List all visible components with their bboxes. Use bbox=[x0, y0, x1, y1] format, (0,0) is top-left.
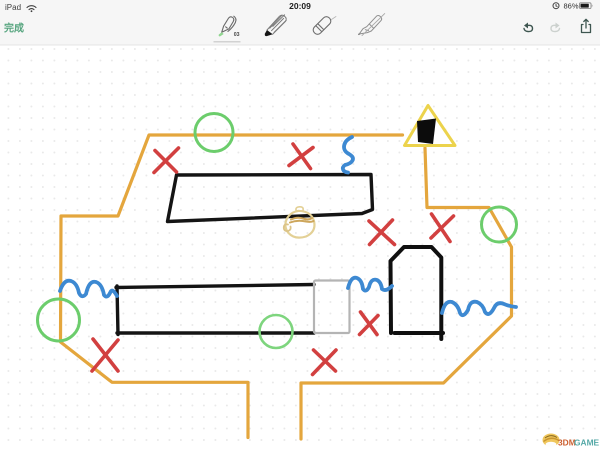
svg-text:86%: 86% bbox=[564, 2, 579, 11]
svg-text:03: 03 bbox=[234, 32, 240, 38]
svg-text:GAME: GAME bbox=[574, 437, 600, 447]
svg-text:20:09: 20:09 bbox=[289, 1, 311, 11]
svg-text:完成: 完成 bbox=[4, 22, 24, 35]
svg-text:iPad: iPad bbox=[5, 3, 21, 12]
